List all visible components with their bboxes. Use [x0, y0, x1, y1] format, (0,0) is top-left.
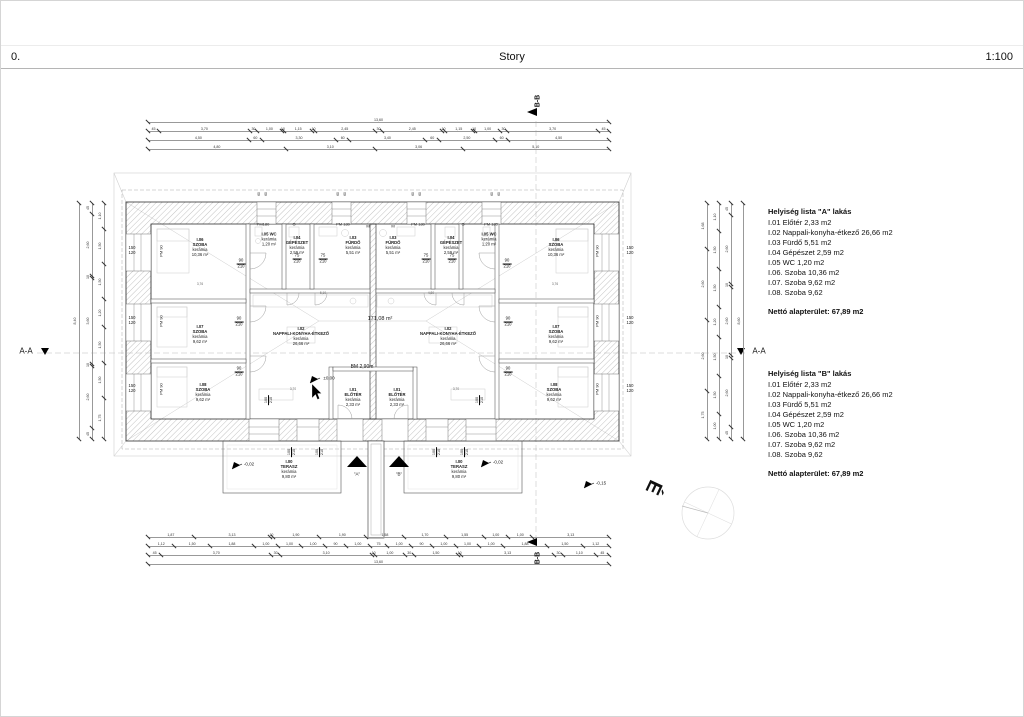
plan-label: I.05 WCkerámia1,20 m²	[481, 233, 496, 248]
plan-label: 90210	[503, 259, 512, 270]
dimension-value: 4,80	[213, 145, 220, 149]
dimension-chain	[79, 203, 80, 439]
dimension-value: 45	[86, 432, 90, 436]
dimension-value: 1,00	[440, 542, 447, 546]
dimension-value: 1,50	[98, 243, 102, 250]
plan-label: 90210	[235, 317, 244, 328]
dimension-value: 90	[333, 542, 337, 546]
dimension-value: 3,70	[549, 127, 556, 131]
dimension-value: 30	[502, 127, 506, 131]
plan-label: 60	[258, 192, 262, 196]
plan-label: -0,02	[493, 459, 503, 464]
plan-label: 3,70	[290, 388, 296, 392]
dimension-value: 1,00	[386, 551, 393, 555]
plan-label: I.03FÜRDŐkerámia5,51 m²	[386, 236, 401, 256]
dimension-value: 1,15	[295, 127, 302, 131]
dimension-chain	[148, 537, 609, 538]
dimension-value: 1,70	[421, 533, 428, 537]
plan-label: 3,76	[197, 283, 203, 287]
dimension-value: 1,75	[98, 415, 102, 422]
terraces	[223, 441, 522, 493]
dimension-value: 45	[153, 551, 157, 555]
dimension-chain	[148, 140, 609, 141]
dimension-value: 1,20	[713, 319, 717, 326]
compass-icon	[682, 487, 734, 539]
room-list-item: I.04 Gépészet 2,59 m2	[768, 248, 893, 258]
dimension-value: 1,50	[713, 285, 717, 292]
plan-label: 100210	[475, 395, 485, 405]
dimension-value: 1,50	[713, 391, 717, 398]
plan-label: 100210	[432, 447, 442, 457]
room-list-b-title: Helyiség lista "B" lakás	[768, 369, 893, 379]
dimension-value: 1,00	[354, 542, 361, 546]
north-arrow-label: É	[640, 476, 666, 498]
dimension-chain	[92, 203, 93, 439]
dimension-value: 1,50	[189, 542, 196, 546]
plan-label: I.05 WCkerámia1,20 m²	[261, 233, 276, 248]
plan-label: 75210	[293, 254, 302, 265]
dimension-value: 2,60	[86, 241, 90, 248]
room-list-item: I.02 Nappali-konyha-étkező 26,66 m2	[768, 390, 893, 400]
plan-label: 5,10	[320, 292, 326, 296]
plan-label: 150120	[627, 316, 634, 326]
floor-plan-canvas	[1, 1, 1024, 717]
dimension-value: 45	[725, 431, 729, 435]
room-list-item: I.07. Szoba 9,62 m2	[768, 278, 893, 288]
plan-label: 75210	[448, 254, 457, 265]
plan-label: I.07SZOBAkerámia9,62 m²	[549, 325, 564, 345]
plan-label: PM 180	[411, 223, 425, 228]
dimension-chain	[731, 203, 732, 439]
dimension-value: 13,60	[374, 118, 383, 122]
dimension-value: 60	[500, 136, 504, 140]
plan-label: PM 180	[336, 223, 350, 228]
entry-pillar-inner	[371, 444, 381, 535]
plan-label: 3,76	[552, 283, 558, 287]
room-list-item: I.04 Gépészet 2,59 m2	[768, 410, 893, 420]
plan-label: G	[461, 223, 464, 228]
dimension-chain	[148, 122, 609, 123]
dimension-value: 45	[601, 127, 605, 131]
dimension-value: 10	[86, 363, 90, 367]
room-list-item: I.01 Előtér 2,33 m2	[768, 380, 893, 390]
plan-label: PM180	[257, 223, 270, 228]
plan-label: 150120	[129, 384, 136, 394]
plan-label: I.07SZOBAkerámia9,62 m²	[193, 325, 208, 345]
dimension-value: 1,12	[158, 542, 165, 546]
dimension-value: 1,00	[396, 542, 403, 546]
room-list-item: I.01 Előtér 2,33 m2	[768, 218, 893, 228]
plan-label: M	[391, 225, 394, 230]
dimension-value: 1,90	[292, 533, 299, 537]
dimension-value: 2,45	[409, 127, 416, 131]
dimension-value: 3,10	[327, 145, 334, 149]
plan-label: I.00TERASZkerámia9,80 m²	[451, 460, 468, 480]
plan-label: 4,80	[428, 292, 434, 296]
plan-label: 60	[337, 192, 341, 196]
dimension-value: 1,50	[713, 353, 717, 360]
room-list-item: I.08. Szoba 9,62	[768, 288, 893, 298]
dimension-value: 2,45	[341, 127, 348, 131]
dimension-value: 1,12	[592, 542, 599, 546]
dimension-value: 90	[420, 542, 424, 546]
plan-label: 150120	[627, 246, 634, 256]
dimension-value: 3,70	[213, 551, 220, 555]
plan-label: PM 90	[160, 315, 165, 327]
dimension-chain	[743, 203, 744, 439]
plan-label: 150120	[129, 316, 136, 326]
dimension-value: 1,00	[492, 533, 499, 537]
dimension-value: 3,10	[323, 551, 330, 555]
plan-label: PM 90	[596, 245, 601, 257]
entrance-label-b: "B"	[396, 472, 402, 477]
plan-label: PM 90	[596, 383, 601, 395]
dimension-value: 1,50	[98, 278, 102, 285]
dimension-chain	[148, 149, 609, 150]
room-list-a-total: Nettó alapterület: 67,89 m2	[768, 307, 893, 317]
dimension-value: 1,68	[701, 222, 705, 229]
dimension-value: 1,75	[701, 412, 705, 419]
dimension-value: 3,60	[86, 318, 90, 325]
dimension-value: 2,60	[701, 281, 705, 288]
dimension-value: 1,10	[98, 212, 102, 219]
dimension-value: 60	[430, 136, 434, 140]
dimension-value: 10	[281, 127, 285, 131]
dimension-value: 30	[377, 127, 381, 131]
story-number: 0.	[11, 51, 20, 63]
dimension-value: 1,00	[266, 127, 273, 131]
dimension-value: 1,50	[98, 377, 102, 384]
room-list-item: I.03 Fürdő 5,51 m2	[768, 238, 893, 248]
dimension-value: 3,40	[384, 136, 391, 140]
plan-label: PM 90	[596, 315, 601, 327]
plan-label: 100210	[315, 447, 325, 457]
plan-label: 100210	[460, 447, 470, 457]
dimension-value: 1,10	[576, 551, 583, 555]
dimension-value: 1,00	[464, 542, 471, 546]
entrance-label-a: "A"	[354, 472, 360, 477]
dimension-value: 1,90	[339, 533, 346, 537]
dimension-value: 13,60	[374, 560, 383, 564]
plan-label: I.08SZOBAkerámia9,62 m²	[196, 383, 211, 403]
roof-outline	[114, 173, 631, 456]
plan-label: 60	[412, 192, 416, 196]
room-list-item: I.02 Nappali-konyha-étkező 26,66 m2	[768, 228, 893, 238]
dimension-value: 60	[253, 136, 257, 140]
room-list-item: I.06. Szoba 10,36 m2	[768, 430, 893, 440]
dimension-value: 1,00	[310, 542, 317, 546]
section-label-bb-bottom: B-B	[535, 552, 542, 564]
dimension-value: 3,30	[296, 136, 303, 140]
dimension-value: 2,60	[725, 318, 729, 325]
plan-label: 60	[498, 192, 502, 196]
plan-label: I.02NAPPALI-KONYHA-ÉTKEZŐkerámia26,66 m²	[273, 327, 329, 347]
plan-label: 3,70	[453, 388, 459, 392]
section-label-bb-top: B-B	[535, 95, 542, 107]
room-list-item: I.05 WC 1,20 m2	[768, 420, 893, 430]
dimension-value: 1,50	[98, 342, 102, 349]
dimension-value: 45	[86, 206, 90, 210]
dimension-chain	[148, 131, 609, 132]
section-triangle-bb-top	[527, 108, 537, 116]
dimension-value: 1,20	[98, 310, 102, 317]
dimension-value: 30	[251, 127, 255, 131]
dimension-value: 5,10	[532, 145, 539, 149]
plan-label: -0,15	[596, 480, 606, 485]
dimension-value: 1,00	[517, 533, 524, 537]
plan-label: 90210	[237, 259, 246, 270]
dimension-value: 45	[600, 551, 604, 555]
mouse-cursor	[312, 384, 322, 400]
dimension-chain	[719, 203, 720, 439]
entrance-arrow-a	[347, 456, 367, 467]
section-triangle-aa-left	[41, 348, 49, 355]
plan-label: PM 90	[160, 383, 165, 395]
scale-label: 1:100	[985, 51, 1013, 63]
dimension-value: 1,15	[455, 127, 462, 131]
title-bar: 0. Story 1:100	[1, 45, 1023, 69]
dimension-value: 10	[372, 551, 376, 555]
dimension-value: 10	[86, 275, 90, 279]
room-list-item: I.07. Szoba 9,62 m2	[768, 440, 893, 450]
dimension-value: 10	[458, 551, 462, 555]
dimension-value: 45	[725, 207, 729, 211]
plan-label: G	[292, 223, 295, 228]
plan-label: 60	[419, 192, 423, 196]
dimension-value: 30	[407, 551, 411, 555]
dimension-value: 1,50	[432, 551, 439, 555]
dimension-value: 30	[557, 551, 561, 555]
dimension-value: 60	[341, 136, 345, 140]
dimension-value: 3,13	[504, 551, 511, 555]
dimension-value: 1,58	[381, 533, 388, 537]
plan-label: PM 180	[484, 223, 498, 228]
dimension-value: 10	[725, 283, 729, 287]
dimension-value: 10	[725, 355, 729, 359]
plan-label: I.00TERASZkerámia9,80 m²	[281, 460, 298, 480]
plan-label: I.01ELŐTÉRkerámia2,33 m²	[389, 388, 406, 408]
plan-label: PM 90	[160, 245, 165, 257]
plan-label: 100210	[287, 447, 297, 457]
dimension-value: 8,60	[737, 318, 741, 325]
plan-label: I.03FÜRDŐkerámia5,51 m²	[346, 236, 361, 256]
room-list-a-title: Helyiség lista "A" lakás	[768, 207, 893, 217]
dimension-value: 2,50	[463, 136, 470, 140]
dimension-chain	[148, 546, 609, 547]
room-list-b-total: Nettó alapterület: 67,89 m2	[768, 469, 893, 479]
dimension-value: 1,00	[262, 542, 269, 546]
dimension-value: 2,60	[701, 352, 705, 359]
plan-label: M	[366, 225, 369, 230]
dimension-value: 10	[472, 127, 476, 131]
dimension-value: 2,60	[86, 394, 90, 401]
dimension-value: 10	[441, 127, 445, 131]
plan-label: 75210	[319, 254, 328, 265]
dimension-value: 1,88	[522, 542, 529, 546]
plan-label: 90210	[504, 367, 513, 378]
plan-label: I.06SZOBAkerámia10,36 m²	[192, 238, 209, 258]
dimension-value: 3,13	[228, 533, 235, 537]
plan-label: 100210	[264, 395, 274, 405]
dimension-value: 1,10	[713, 213, 717, 220]
dimension-value: 1,88	[228, 542, 235, 546]
plan-label: 171,08 m²	[368, 316, 393, 322]
plan-label: 60	[491, 192, 495, 196]
plan-label: 150120	[627, 384, 634, 394]
dimension-value: 1,87	[167, 533, 174, 537]
room-list-item: I.06. Szoba 10,36 m2	[768, 268, 893, 278]
dimension-value: 1,55	[461, 533, 468, 537]
section-label-aa-left: A-A	[19, 347, 32, 356]
room-list-a: Helyiség lista "A" lakás I.01 Előtér 2,3…	[768, 207, 893, 317]
dimension-value: 10	[312, 127, 316, 131]
dimension-value: 3,13	[567, 533, 574, 537]
dimension-value: 4,50	[195, 136, 202, 140]
plan-label: I.08SZOBAkerámia9,62 m²	[547, 383, 562, 403]
plan-label: ±0,00	[323, 375, 334, 380]
plan-label: 90210	[235, 367, 244, 378]
plan-label: BM 2,90m	[351, 365, 374, 371]
dimension-value: 30	[274, 551, 278, 555]
dimension-value: 2,60	[725, 246, 729, 253]
dimension-value: 8,40	[73, 318, 77, 325]
dimension-value: 3,70	[201, 127, 208, 131]
dimension-value: 3,06	[415, 145, 422, 149]
dimension-value: 2,60	[725, 389, 729, 396]
dimension-value: 75	[377, 542, 381, 546]
room-list-item: I.05 WC 1,20 m2	[768, 258, 893, 268]
room-list-item: I.08. Szoba 9,62	[768, 450, 893, 460]
plan-label: I.01ELŐTÉRkerámia2,33 m²	[345, 388, 362, 408]
plan-label: 90210	[504, 317, 513, 328]
dimension-value: 1,50	[561, 542, 568, 546]
dimension-value: 1,50	[713, 246, 717, 253]
plan-label: 60	[265, 192, 269, 196]
plan-label: 75210	[422, 254, 431, 265]
room-list-b: Helyiség lista "B" lakás I.01 Előtér 2,3…	[768, 369, 893, 479]
plan-label: 150120	[129, 246, 136, 256]
dimension-value: 4,50	[555, 136, 562, 140]
entry-pillar	[368, 441, 384, 538]
plan-label: -0,02	[244, 461, 254, 466]
dimension-value: 45	[152, 127, 156, 131]
plan-label: 60	[344, 192, 348, 196]
entrance-arrow-b	[389, 456, 409, 467]
section-label-aa-right: A-A	[752, 347, 765, 356]
dimension-value: 10	[269, 533, 273, 537]
dimension-value: 1,00	[484, 127, 491, 131]
plan-label: I.06SZOBAkerámia10,36 m²	[548, 238, 565, 258]
page-title: Story	[1, 51, 1023, 63]
drawing-sheet: 0. Story 1:100	[0, 0, 1024, 717]
plan-label: I.02NAPPALI-KONYHA-ÉTKEZŐkerámia26,66 m²	[420, 327, 476, 347]
dimension-chain	[104, 203, 105, 439]
dimension-value: 1,00	[286, 542, 293, 546]
room-list-item: I.03 Fürdő 5,51 m2	[768, 400, 893, 410]
dimension-value: 1,00	[488, 542, 495, 546]
dimension-value: 1,00	[713, 423, 717, 430]
